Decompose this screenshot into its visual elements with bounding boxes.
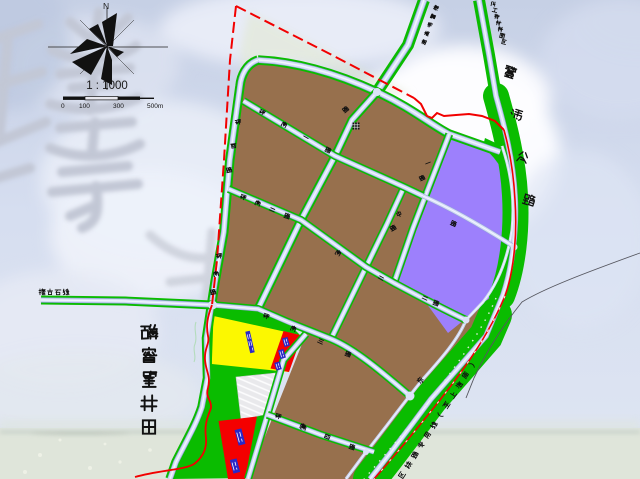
svg-text:0: 0	[61, 103, 65, 110]
svg-text:300: 300	[113, 103, 124, 110]
svg-text:N: N	[103, 1, 109, 11]
svg-text:1 : 1000: 1 : 1000	[86, 80, 128, 92]
svg-text:100: 100	[79, 103, 90, 110]
svg-text:500m: 500m	[147, 103, 163, 110]
